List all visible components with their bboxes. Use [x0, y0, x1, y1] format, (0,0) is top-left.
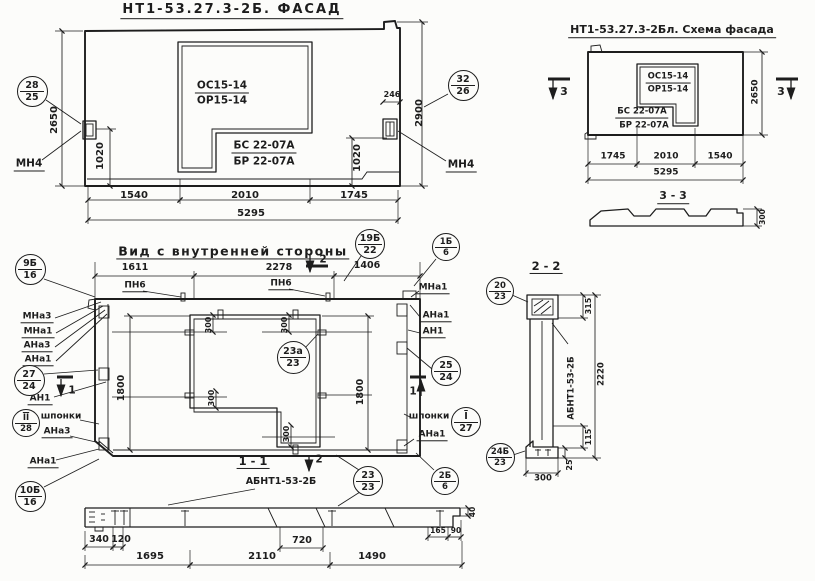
section11-title: 1 - 1 — [237, 455, 270, 469]
dim-2650-schema: 2650 — [751, 79, 760, 104]
label-ana3-left-lower: АНа3 — [42, 427, 73, 438]
dim-2220-section22: 2220 — [598, 362, 607, 386]
label-mna1-left: МНа1 — [22, 327, 55, 338]
dim-5295-schema: 5295 — [653, 168, 678, 177]
section2-marker-top: 2 — [319, 254, 326, 265]
dim-165-section11: 165 — [430, 527, 446, 535]
lintel-mark-bs: БС 22-07А — [231, 140, 296, 153]
dim-300-opening-b: 300 — [283, 426, 291, 443]
callout-sheet-number: 23 — [489, 292, 511, 302]
text-layer: НТ1-53.27.3-2Б. ФАСАДОС15-14ОР15-14БС 22… — [0, 0, 815, 581]
dim-2010-facade: 2010 — [231, 191, 259, 202]
callout-2b-6: 2Б6 — [431, 467, 459, 495]
callout-position-number: II — [15, 413, 37, 424]
schema-mark-bs: БС 22-07А — [615, 108, 668, 119]
callout-position-number: 23а — [280, 346, 307, 358]
loop-label-pn6-right: ПН6 — [268, 279, 293, 290]
callout-23-23: 2323 — [353, 466, 383, 496]
dim-115-section22: 115 — [585, 429, 593, 446]
dim-2900-facade: 2900 — [415, 99, 426, 127]
callout-sheet-number: 28 — [15, 424, 37, 434]
callout-sheet-number: 25 — [20, 92, 45, 103]
callout-sheet-number: 23 — [488, 458, 511, 468]
facade-title: НТ1-53.27.3-2Б. ФАСАД — [120, 3, 343, 19]
dim-1406-inner: 1406 — [354, 261, 380, 271]
dim-315-section22: 315 — [585, 298, 593, 315]
dim-5295-facade: 5295 — [237, 209, 265, 220]
callout-1b-6: 1Б6 — [432, 233, 460, 261]
callout-19b-22: 19Б22 — [355, 229, 385, 259]
callout-sheet-number: 23 — [280, 358, 307, 369]
dim-300-section22: 300 — [534, 475, 552, 484]
schema-title: НТ1-53.27.3-2Бл. Схема фасада — [568, 24, 776, 38]
callout-sheet-number: 22 — [358, 245, 382, 256]
label-an1-right: АН1 — [421, 327, 446, 338]
dim-720-section11: 720 — [292, 536, 312, 546]
section2-marker-bottom: 2 — [315, 454, 322, 465]
label-mna3-left: МНа3 — [21, 312, 54, 323]
engineering-drawing-sheet: НТ1-53.27.3-2Б. ФАСАДОС15-14ОР15-14БС 22… — [0, 0, 815, 581]
label-ana1-right-lower: АНа1 — [417, 430, 448, 441]
callout-24b-23: 24Б23 — [486, 443, 515, 472]
dim-1540-schema: 1540 — [707, 152, 732, 161]
callout-position-number: 9Б — [18, 258, 43, 270]
callout-sheet-number: 6 — [435, 248, 457, 258]
callout-9b-16: 9Б16 — [15, 254, 46, 285]
dim-25-section22: 25 — [566, 459, 574, 470]
callout-32-26: 3226 — [448, 70, 479, 101]
label-shponki-left: шпонки — [41, 412, 82, 421]
label-mna1-top-right: МНа1 — [417, 283, 450, 294]
dim-2110-section11: 2110 — [248, 552, 276, 563]
dim-1020-facade-right: 1020 — [353, 144, 364, 172]
section3-marker-left: 3 — [560, 86, 568, 98]
callout-position-number: 28 — [20, 80, 45, 92]
dim-340-section11: 340 — [89, 535, 109, 545]
opening-mark-os: ОС15-14 — [195, 80, 249, 93]
section11-subtitle: АБНТ1-53-2Б — [246, 477, 317, 487]
dim-1540-facade: 1540 — [120, 191, 148, 202]
callout-position-number: I — [454, 411, 478, 423]
callout-position-number: 27 — [17, 369, 42, 381]
label-shponki-right: шпонки — [409, 412, 450, 421]
section22-side-label: АБНТ1-53-2Б — [568, 356, 577, 419]
callout-position-number: 24Б — [488, 447, 511, 458]
inner-title: Вид с внутренней стороны — [116, 244, 349, 259]
dim-300-opening-ml: 300 — [208, 390, 216, 407]
dim-2010-schema: 2010 — [653, 152, 678, 161]
lintel-mark-br: БР 22-07А — [233, 156, 294, 167]
dim-1745-schema: 1745 — [600, 152, 625, 161]
callout-20-23: 2023 — [486, 277, 514, 305]
callout-sheet-number: 23 — [356, 482, 380, 493]
opening-mark-or: ОР15-14 — [197, 95, 247, 106]
callout-28-25: 2825 — [17, 76, 48, 107]
callout-position-number: 23 — [356, 470, 380, 482]
callout-position-number: 1Б — [435, 237, 457, 248]
dim-1800-inner-left: 1800 — [117, 375, 127, 401]
dim-120-section11: 120 — [111, 535, 131, 545]
callout-sheet-number: 24 — [434, 372, 458, 383]
anchor-label-mn4-right: МН4 — [446, 159, 477, 172]
dim-1800-inner-right: 1800 — [356, 379, 366, 405]
callout-25-24: 2524 — [431, 356, 461, 386]
callout-10b-16: 10Б16 — [15, 481, 46, 512]
callout-sheet-number: 26 — [451, 86, 476, 97]
callout-position-number: 20 — [489, 281, 511, 292]
callout-23a-23: 23а23 — [277, 341, 310, 374]
dim-300-opening-tr: 300 — [281, 317, 289, 334]
schema-mark-or: ОР15-14 — [648, 86, 689, 95]
callout-position-number: 10Б — [18, 485, 43, 497]
dim-2278-inner: 2278 — [266, 263, 292, 273]
section22-title: 2 - 2 — [530, 260, 563, 274]
callout-27-24: 2724 — [14, 365, 45, 396]
schema-mark-br: БР 22-07А — [619, 122, 668, 131]
callout-sheet-number: 6 — [434, 482, 456, 492]
dim-1695-section11: 1695 — [136, 552, 164, 563]
label-ana1-left-lower: АНа1 — [28, 457, 59, 468]
callout-sheet-number: 24 — [17, 381, 42, 392]
callout-sheet-number: 27 — [454, 423, 478, 434]
schema-mark-os: ОС15-14 — [646, 73, 691, 84]
dim-1745-facade: 1745 — [340, 191, 368, 202]
callout-position-number: 2Б — [434, 471, 456, 482]
dim-1020-facade-left: 1020 — [96, 142, 107, 170]
callout-ii-28: II28 — [12, 409, 40, 437]
label-an1-left: АН1 — [28, 394, 53, 405]
loop-label-pn6-left: ПН6 — [122, 281, 147, 292]
section1-marker-right: 1 — [409, 386, 416, 397]
dim-300-opening-tl: 300 — [205, 317, 213, 334]
label-ana1-right: АНа1 — [421, 311, 452, 322]
dim-2650-facade: 2650 — [50, 106, 61, 134]
callout-position-number: 32 — [451, 74, 476, 86]
section1-marker-left: 1 — [68, 385, 75, 396]
callout-position-number: 25 — [434, 360, 458, 372]
dim-90-section11: 90 — [451, 527, 461, 535]
dim-1611-inner: 1611 — [122, 263, 148, 273]
section33-title: 3 - 3 — [657, 190, 689, 204]
anchor-label-mn4-left: МН4 — [14, 158, 45, 171]
callout-sheet-number: 16 — [18, 270, 43, 281]
dim-300-section33: 300 — [759, 209, 767, 225]
callout-position-number: 19Б — [358, 233, 382, 245]
callout-i-27: I27 — [451, 407, 481, 437]
callout-sheet-number: 16 — [18, 497, 43, 508]
label-ana3-left: АНа3 — [22, 341, 53, 352]
section3-marker-right: 3 — [777, 86, 785, 98]
dim-40-section11: 40 — [469, 507, 477, 517]
dim-1490-section11: 1490 — [358, 552, 386, 563]
dim-246-facade: 246 — [384, 91, 401, 99]
